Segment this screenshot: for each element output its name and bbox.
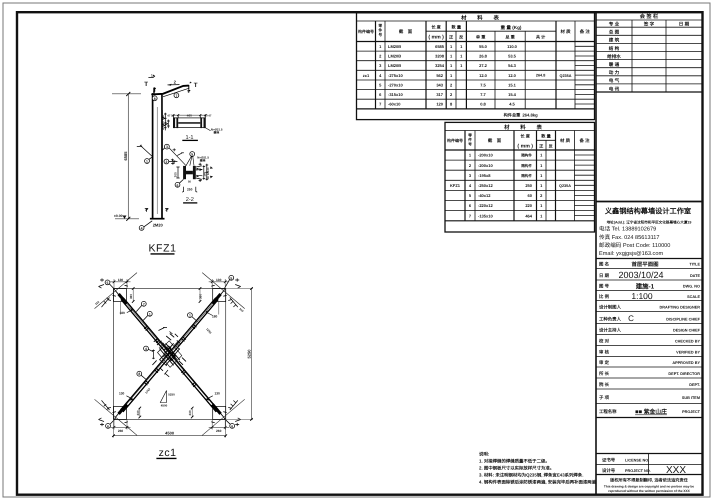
svg-text:5: 5 — [379, 83, 382, 88]
svg-text:4: 4 — [145, 347, 147, 351]
svg-text:3208: 3208 — [435, 54, 445, 59]
svg-text:-135x10: -135x10 — [478, 213, 493, 218]
svg-text:DWG. NO: DWG. NO — [683, 285, 700, 289]
svg-text:3: 3 — [469, 173, 472, 178]
svg-text:130: 130 — [118, 278, 124, 282]
svg-text:7: 7 — [469, 213, 472, 218]
svg-text:26.8: 26.8 — [479, 54, 488, 59]
svg-text:130: 130 — [119, 392, 125, 396]
svg-text:KFZ1: KFZ1 — [450, 183, 461, 188]
svg-text:1: 1 — [149, 312, 151, 316]
svg-text:长 度: 长 度 — [431, 25, 441, 30]
svg-text:7: 7 — [175, 94, 177, 98]
svg-text:LM20B: LM20B — [388, 54, 401, 59]
svg-text:1: 1 — [540, 203, 543, 208]
svg-text:6585: 6585 — [435, 44, 445, 49]
svg-text:数 量: 数 量 — [452, 25, 462, 30]
svg-text:专 业: 专 业 — [609, 21, 620, 26]
svg-text:子 项: 子 项 — [599, 395, 610, 400]
svg-text:LM20B: LM20B — [388, 63, 401, 68]
svg-text:200: 200 — [174, 172, 178, 177]
svg-text:数 量: 数 量 — [541, 134, 551, 139]
svg-text:40: 40 — [207, 167, 210, 170]
svg-text:材 质: 材 质 — [559, 138, 571, 143]
svg-text:±0.00: ±0.00 — [114, 214, 123, 218]
svg-text:随构件: 随构件 — [521, 153, 532, 158]
svg-text:-60x10: -60x10 — [388, 102, 401, 107]
svg-text:说明:: 说明: — [479, 452, 490, 457]
svg-text:CHECKED BY: CHECKED BY — [675, 340, 701, 344]
svg-text:15.4: 15.4 — [508, 92, 517, 97]
svg-text:4. 钢构件表面除锈后涂防锈漆两遍, 安装完毕后再补面漆两遍: 4. 钢构件表面除锈后涂防锈漆两遍, 安装完毕后再补面漆两遍 — [479, 480, 597, 485]
svg-text:证书号: 证书号 — [602, 458, 616, 463]
svg-text:电 气: 电 气 — [609, 78, 620, 83]
svg-text:7: 7 — [379, 102, 382, 107]
svg-text:长 度: 长 度 — [520, 134, 530, 139]
svg-text:3. 材料: 未注明钢材均为Q235钢, 焊条宜E43系列焊: 3. 材料: 未注明钢材均为Q235钢, 焊条宜E43系列焊条. — [479, 473, 583, 478]
svg-text:310: 310 — [94, 300, 100, 306]
svg-text:360: 360 — [198, 294, 202, 299]
svg-text:DRAFTING DESIGNER: DRAFTING DESIGNER — [659, 306, 700, 310]
svg-text:130: 130 — [216, 278, 222, 282]
svg-text:250: 250 — [187, 188, 193, 192]
svg-text:1:100: 1:100 — [631, 291, 653, 301]
svg-text:260: 260 — [118, 429, 124, 433]
svg-text:-40x12: -40x12 — [478, 193, 491, 198]
svg-text:reproduced without the written: reproduced without the written permissio… — [608, 489, 690, 493]
svg-text:截 面: 截 面 — [487, 138, 502, 143]
svg-text:随构件: 随构件 — [521, 163, 532, 168]
svg-text:SCALE: SCALE — [687, 295, 700, 299]
svg-text:电 讯: 电 讯 — [609, 86, 620, 91]
svg-text:4: 4 — [379, 73, 382, 78]
svg-text:1290: 1290 — [205, 327, 212, 335]
svg-text:TITLE: TITLE — [689, 263, 700, 267]
svg-text:构件编号: 构件编号 — [358, 29, 374, 34]
svg-text:动 力: 动 力 — [609, 70, 620, 75]
svg-text:工程名称: 工程名称 — [599, 409, 617, 414]
svg-text:会 签 栏: 会 签 栏 — [640, 13, 659, 20]
svg-text:2: 2 — [469, 163, 472, 168]
svg-text:APPROVED BY: APPROVED BY — [672, 361, 700, 365]
svg-text:零: 零 — [468, 133, 472, 138]
svg-text:DESIGN CHIEF: DESIGN CHIEF — [673, 329, 701, 333]
svg-text:6: 6 — [107, 424, 109, 428]
svg-text:校 对: 校 对 — [599, 339, 610, 344]
svg-text:2: 2 — [450, 83, 453, 88]
svg-text:首层平面图: 首层平面图 — [632, 261, 660, 268]
svg-text:备 注: 备 注 — [579, 29, 591, 34]
svg-text:-270x10: -270x10 — [388, 83, 403, 88]
svg-text:120: 120 — [207, 170, 210, 175]
svg-text:1: 1 — [460, 63, 463, 68]
svg-text:1: 1 — [540, 163, 543, 168]
svg-text:构件编号: 构件编号 — [447, 138, 463, 143]
svg-text:图 号: 图 号 — [599, 284, 610, 289]
svg-text:螺栓: 螺栓 — [214, 131, 220, 135]
svg-text:( mm ): ( mm ) — [517, 144, 533, 150]
svg-text:-200x10: -200x10 — [478, 163, 493, 168]
svg-text:Q235A: Q235A — [559, 74, 571, 78]
svg-text:460: 460 — [187, 114, 192, 118]
svg-text:随构件: 随构件 — [521, 173, 532, 178]
svg-text:5250: 5250 — [246, 349, 251, 359]
svg-text:-195x8: -195x8 — [478, 173, 491, 178]
svg-text:2: 2 — [450, 92, 453, 97]
svg-text:-275x10: -275x10 — [388, 73, 403, 78]
svg-text:6: 6 — [231, 424, 233, 428]
svg-text:工种负责人: 工种负责人 — [599, 317, 622, 322]
svg-text:7.7: 7.7 — [480, 92, 486, 97]
svg-text:共 计: 共 计 — [536, 35, 546, 40]
svg-text:1: 1 — [540, 153, 543, 158]
svg-text:230: 230 — [188, 410, 192, 415]
svg-text:邮政编码 Post Code: 110000: 邮政编码 Post Code: 110000 — [599, 242, 670, 249]
svg-text:签 字: 签 字 — [643, 20, 655, 26]
svg-text:55.0: 55.0 — [479, 44, 488, 49]
svg-text:-200x10: -200x10 — [478, 153, 493, 158]
svg-text:传真 Fax. 024 85613117: 传真 Fax. 024 85613117 — [599, 234, 660, 241]
svg-text:所 长: 所 长 — [598, 371, 610, 376]
svg-text:1: 1 — [540, 183, 543, 188]
svg-text:110.0: 110.0 — [507, 44, 518, 49]
svg-text:3: 3 — [166, 145, 168, 149]
svg-text:360: 360 — [129, 294, 133, 299]
svg-text:343: 343 — [436, 83, 443, 88]
svg-text:( mm ): ( mm ) — [428, 35, 444, 41]
svg-text:螺栓: 螺栓 — [200, 158, 206, 162]
svg-text:1: 1 — [450, 54, 453, 59]
svg-text:7: 7 — [143, 302, 145, 306]
svg-text:图 名: 图 名 — [599, 262, 609, 267]
svg-text:总 图: 总 图 — [609, 30, 620, 35]
svg-text:120: 120 — [436, 102, 443, 107]
svg-text:5: 5 — [107, 281, 109, 285]
svg-text:6: 6 — [177, 183, 179, 187]
svg-text:1: 1 — [540, 213, 543, 218]
svg-text:3254: 3254 — [435, 63, 445, 68]
svg-text:53.5: 53.5 — [508, 54, 517, 59]
svg-text:2. 图中钢板尺寸以实际放样尺寸为准。: 2. 图中钢板尺寸以实际放样尺寸为准。 — [479, 465, 554, 470]
svg-text:Email: yxgjgsjs@163.com: Email: yxgjgsjs@163.com — [599, 250, 663, 257]
svg-text:号: 号 — [378, 32, 382, 37]
svg-text:12.0: 12.0 — [508, 73, 517, 78]
svg-text:DATE: DATE — [690, 274, 701, 278]
svg-text:建 筑: 建 筑 — [608, 38, 620, 43]
svg-text:7.5: 7.5 — [480, 83, 486, 88]
svg-text:T: T — [144, 81, 148, 88]
svg-text:317: 317 — [436, 92, 443, 97]
svg-text:562: 562 — [436, 73, 443, 78]
svg-text:5: 5 — [191, 153, 193, 157]
svg-text:264.8kg: 264.8kg — [522, 113, 538, 118]
svg-text:220: 220 — [525, 203, 532, 208]
svg-text:230: 230 — [136, 410, 140, 415]
svg-text:250: 250 — [525, 183, 532, 188]
svg-text:结 构: 结 构 — [609, 46, 620, 51]
svg-text:1: 1 — [450, 44, 453, 49]
svg-text:DEPT.: DEPT. — [689, 383, 700, 387]
svg-text:1: 1 — [189, 314, 191, 318]
svg-text:1: 1 — [450, 73, 453, 78]
svg-text:设计制图人: 设计制图人 — [599, 305, 622, 310]
svg-text:6: 6 — [379, 92, 382, 97]
svg-text:54.3: 54.3 — [508, 63, 517, 68]
svg-text:1767: 1767 — [144, 387, 151, 395]
svg-text:2: 2 — [379, 54, 382, 59]
svg-text:6585: 6585 — [123, 151, 128, 161]
svg-text:C: C — [628, 314, 634, 323]
svg-text:正: 正 — [449, 35, 454, 40]
svg-text:5250: 5250 — [168, 393, 175, 397]
svg-text:材 料 表: 材 料 表 — [460, 15, 499, 22]
svg-text:6: 6 — [469, 203, 472, 208]
svg-text:2M20: 2M20 — [153, 223, 164, 228]
svg-text:zc1: zc1 — [159, 447, 177, 459]
svg-text:4500: 4500 — [161, 404, 168, 408]
svg-text:LM20B: LM20B — [388, 44, 401, 49]
svg-text:备 注: 备 注 — [578, 138, 590, 143]
svg-text:院 长: 院 长 — [599, 382, 610, 387]
svg-text:260: 260 — [216, 429, 222, 433]
svg-text:0.8: 0.8 — [480, 102, 486, 107]
svg-text:180: 180 — [212, 315, 218, 319]
svg-text:8: 8 — [450, 102, 453, 107]
svg-text:1: 1 — [146, 160, 148, 164]
svg-text:DEPT. DIRECTOR: DEPT. DIRECTOR — [668, 372, 700, 376]
svg-text:PROJECT: PROJECT — [682, 410, 701, 414]
svg-text:版权所有不得复制翻印, 违者依法追究责任: 版权所有不得复制翻印, 违者依法追究责任 — [610, 478, 689, 483]
svg-text:件: 件 — [378, 28, 382, 33]
svg-text:160: 160 — [202, 171, 206, 176]
svg-text:总 重: 总 重 — [505, 35, 515, 40]
svg-text:1: 1 — [151, 73, 153, 77]
svg-text:材 质: 材 质 — [559, 29, 571, 34]
svg-text:反: 反 — [459, 35, 464, 40]
svg-text:电话 Tel. 13889102679: 电话 Tel. 13889102679 — [599, 226, 656, 233]
svg-text:1: 1 — [460, 54, 463, 59]
svg-text:审 定: 审 定 — [599, 360, 610, 365]
svg-text:审 核: 审 核 — [599, 350, 610, 355]
svg-text:XXX: XXX — [666, 465, 686, 476]
svg-text:重 量 (Kg): 重 量 (Kg) — [501, 25, 522, 30]
svg-text:件: 件 — [468, 137, 472, 142]
svg-text:464: 464 — [525, 213, 532, 218]
svg-text:2-2: 2-2 — [186, 197, 194, 203]
svg-text:DISCIPLINE CHIEF: DISCIPLINE CHIEF — [666, 318, 700, 322]
svg-text:1: 1 — [460, 44, 463, 49]
svg-text:2: 2 — [165, 160, 167, 164]
svg-text:50: 50 — [188, 181, 191, 184]
svg-text:4500: 4500 — [165, 431, 175, 436]
svg-text:1: 1 — [379, 44, 382, 49]
svg-text:8: 8 — [138, 372, 140, 376]
svg-text:日 期: 日 期 — [679, 21, 690, 26]
svg-text:5: 5 — [230, 276, 232, 280]
svg-text:Q235A: Q235A — [559, 184, 571, 188]
svg-text:正: 正 — [539, 144, 544, 149]
svg-text:地址(Add.): 辽宁省沈阳市和平区文化路幕墙心大厦19: 地址(Add.): 辽宁省沈阳市和平区文化路幕墙心大厦19 — [607, 220, 692, 225]
svg-text:材 料 表: 材 料 表 — [503, 124, 542, 131]
svg-text:比 例: 比 例 — [599, 294, 610, 299]
svg-text:日 期: 日 期 — [599, 273, 610, 278]
svg-text:给排水: 给排水 — [607, 54, 621, 59]
svg-text:反: 反 — [549, 144, 554, 149]
svg-text:-220x12: -220x12 — [478, 203, 493, 208]
svg-text:15.1: 15.1 — [508, 83, 517, 88]
svg-text:构件总重: 构件总重 — [504, 113, 522, 118]
svg-text:1. 对接焊缝的焊缝质量不低于二级。: 1. 对接焊缝的焊缝质量不低于二级。 — [479, 458, 550, 463]
svg-text:-315x10: -315x10 — [388, 92, 403, 97]
svg-text:5: 5 — [469, 193, 472, 198]
svg-text:建施-1: 建施-1 — [635, 283, 655, 291]
svg-text:截 面: 截 面 — [398, 29, 413, 34]
svg-text:264.8: 264.8 — [536, 74, 546, 78]
svg-text:号: 号 — [468, 142, 472, 147]
svg-text:1: 1 — [450, 63, 453, 68]
svg-text:T: T — [194, 82, 198, 89]
svg-text:1: 1 — [469, 153, 472, 158]
svg-text:暖 通: 暖 通 — [609, 62, 620, 67]
svg-text:4: 4 — [141, 226, 143, 230]
svg-text:设计主持人: 设计主持人 — [599, 328, 622, 333]
svg-text:2: 2 — [174, 79, 177, 84]
svg-text:单 重: 单 重 — [476, 35, 486, 40]
svg-text:8: 8 — [154, 97, 156, 101]
svg-text:LICENSE NO.: LICENSE NO. — [625, 459, 649, 463]
svg-text:■■ 紫金山庄: ■■ 紫金山庄 — [635, 408, 667, 416]
svg-text:130: 130 — [215, 392, 221, 396]
svg-text:PROJECT NO.: PROJECT NO. — [625, 469, 651, 473]
svg-text:KFZ1: KFZ1 — [148, 243, 176, 255]
svg-text:VERIFIED BY: VERIFIED BY — [676, 351, 700, 355]
svg-text:4: 4 — [469, 183, 472, 188]
svg-text:27.2: 27.2 — [479, 63, 488, 68]
svg-text:3: 3 — [379, 63, 382, 68]
svg-text:-250x12: -250x12 — [478, 183, 493, 188]
svg-text:4.5: 4.5 — [509, 102, 515, 107]
svg-text:1: 1 — [540, 173, 543, 178]
svg-text:零: 零 — [378, 23, 382, 28]
svg-text:义鑫钢结构幕墙设计工作室: 义鑫钢结构幕墙设计工作室 — [605, 207, 691, 216]
svg-text:This drawing & design are copy: This drawing & design are copyright and … — [604, 485, 694, 489]
svg-text:2003/10/24: 2003/10/24 — [618, 270, 663, 280]
svg-text:SUB ITEM: SUB ITEM — [682, 396, 700, 400]
svg-text:2: 2 — [540, 193, 543, 198]
svg-text:12.0: 12.0 — [479, 73, 488, 78]
svg-text:zc1: zc1 — [363, 73, 370, 78]
svg-text:设计号: 设计号 — [602, 468, 616, 473]
svg-text:60: 60 — [528, 193, 533, 198]
